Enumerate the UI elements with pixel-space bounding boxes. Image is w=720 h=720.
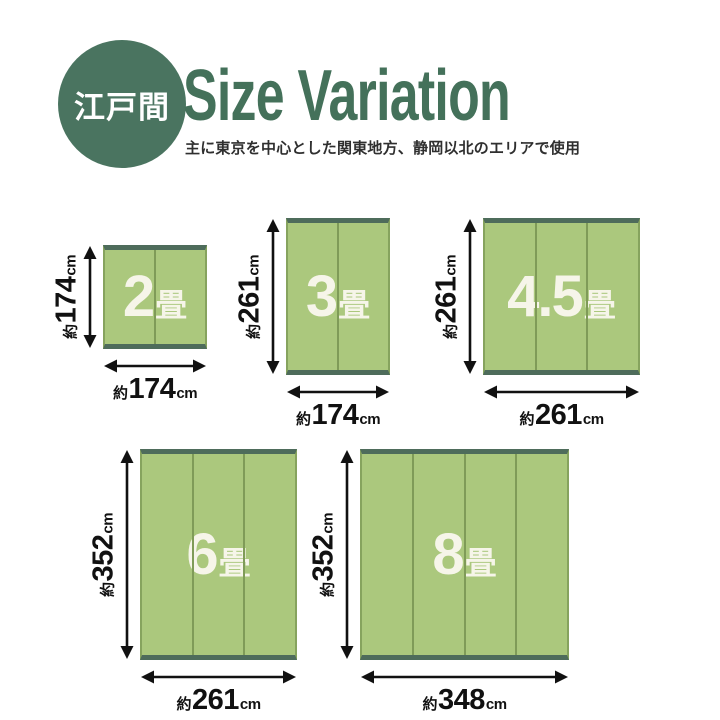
rug-surface: 4.5畳 <box>483 218 640 375</box>
rug-size-unit: 畳 <box>155 290 187 320</box>
width-value: 174 <box>311 401 358 430</box>
edoma-badge-label: 江戸間 <box>74 82 170 127</box>
unit-cm: cm <box>486 696 507 713</box>
height-dimension: 約261cm <box>432 218 478 375</box>
panel-divider <box>464 454 466 655</box>
width-arrow-icon <box>483 384 640 400</box>
unit-cm: cm <box>359 411 380 428</box>
rug-surface: 8畳 <box>360 449 569 660</box>
unit-cm: cm <box>176 385 197 402</box>
panel-divider <box>243 454 245 655</box>
height-label-area: 約352cm <box>309 449 339 660</box>
unit-cm: cm <box>63 255 80 276</box>
height-dimension-label: 約261cm <box>236 254 265 338</box>
rug-diagram-4-5jo: 約261cm 4.5畳 約261cm <box>432 218 640 430</box>
panel-divider <box>337 223 339 370</box>
height-dimension: 約174cm <box>52 245 98 349</box>
height-arrow-icon <box>265 218 281 375</box>
rug-surface: 2畳 <box>103 245 207 349</box>
height-value: 261 <box>236 276 265 323</box>
height-value: 352 <box>310 534 339 581</box>
rug-size-label: 4.5畳 <box>507 273 616 321</box>
rug-surface: 6畳 <box>140 449 297 660</box>
rug-size-unit: 畳 <box>584 290 616 320</box>
unit-cm: cm <box>100 512 117 533</box>
height-label-area: 約261cm <box>432 218 462 375</box>
rug-diagram-3jo: 約261cm 3畳 約174cm <box>235 218 390 430</box>
rug-column: 3畳 約174cm <box>286 218 390 430</box>
unit-cm: cm <box>583 411 604 428</box>
height-dimension-label: 約174cm <box>53 255 82 339</box>
rug-diagram-6jo: 約352cm 6畳 約261cm <box>89 449 297 715</box>
rug-column: 4.5畳 約261cm <box>483 218 640 430</box>
size-variation-infographic: 江戸間 Size Variation 主に東京を中心とした関東地方、静岡以北のエ… <box>0 0 720 720</box>
rug-size-number: 2 <box>123 273 153 321</box>
height-label-area: 約352cm <box>89 449 119 660</box>
rug-diagram-8jo: 約352cm 8畳 約348cm <box>309 449 569 715</box>
width-value: 261 <box>192 686 239 715</box>
height-dimension: 約352cm <box>309 449 355 660</box>
approx-prefix: 約 <box>97 582 118 597</box>
approx-prefix: 約 <box>60 325 81 340</box>
unit-cm: cm <box>443 254 460 275</box>
height-dimension-label: 約352cm <box>90 512 119 596</box>
page-title: Size Variation <box>183 60 510 132</box>
height-dimension-label: 約352cm <box>310 512 339 596</box>
height-label-area: 約261cm <box>235 218 265 375</box>
height-value: 261 <box>433 276 462 323</box>
unit-cm: cm <box>320 512 337 533</box>
width-value: 261 <box>535 401 582 430</box>
rug-size-unit: 畳 <box>219 548 251 578</box>
approx-prefix: 約 <box>519 408 534 429</box>
approx-prefix: 約 <box>243 324 264 339</box>
height-dimension: 約261cm <box>235 218 281 375</box>
height-arrow-icon <box>82 245 98 349</box>
unit-cm: cm <box>246 254 263 275</box>
panel-divider <box>154 250 156 344</box>
approx-prefix: 約 <box>317 582 338 597</box>
approx-prefix: 約 <box>296 408 311 429</box>
height-value: 352 <box>90 534 119 581</box>
height-arrow-icon <box>462 218 478 375</box>
width-dimension-label: 約174cm <box>113 375 197 404</box>
rug-column: 2畳 約174cm <box>103 245 207 404</box>
panel-divider <box>192 454 194 655</box>
width-value: 174 <box>128 375 175 404</box>
panel-divider <box>535 223 537 370</box>
width-arrow-icon <box>103 358 207 374</box>
rug-size-unit: 畳 <box>465 548 497 578</box>
panel-divider <box>515 454 517 655</box>
approx-prefix: 約 <box>422 693 437 714</box>
rug-column: 8畳 約348cm <box>360 449 569 715</box>
rug-size-number: 8 <box>432 531 462 579</box>
height-arrow-icon <box>119 449 135 660</box>
width-dimension-label: 約261cm <box>519 401 603 430</box>
panel-divider <box>586 223 588 370</box>
height-label-area: 約174cm <box>52 245 82 349</box>
approx-prefix: 約 <box>176 693 191 714</box>
rug-size-number: 4.5 <box>507 273 582 321</box>
height-dimension: 約352cm <box>89 449 135 660</box>
width-arrow-icon <box>140 669 297 685</box>
page-subtitle: 主に東京を中心とした関東地方、静岡以北のエリアで使用 <box>185 137 580 158</box>
width-dimension-label: 約174cm <box>296 401 380 430</box>
width-dimension-label: 約261cm <box>176 686 260 715</box>
width-dimension-label: 約348cm <box>422 686 506 715</box>
rug-diagram-2jo: 約174cm 2畳 約174cm <box>52 245 207 404</box>
rug-size-unit: 畳 <box>338 290 370 320</box>
width-arrow-icon <box>286 384 390 400</box>
edoma-badge: 江戸間 <box>58 40 186 168</box>
approx-prefix: 約 <box>440 324 461 339</box>
unit-cm: cm <box>240 696 261 713</box>
rug-column: 6畳 約261cm <box>140 449 297 715</box>
height-arrow-icon <box>339 449 355 660</box>
rug-surface: 3畳 <box>286 218 390 375</box>
rug-size-number: 6 <box>186 531 216 579</box>
approx-prefix: 約 <box>113 382 128 403</box>
width-value: 348 <box>438 686 485 715</box>
height-value: 174 <box>53 277 82 324</box>
width-arrow-icon <box>360 669 569 685</box>
rug-size-label: 6畳 <box>186 531 250 579</box>
rug-size-number: 3 <box>306 273 336 321</box>
panel-divider <box>412 454 414 655</box>
height-dimension-label: 約261cm <box>433 254 462 338</box>
